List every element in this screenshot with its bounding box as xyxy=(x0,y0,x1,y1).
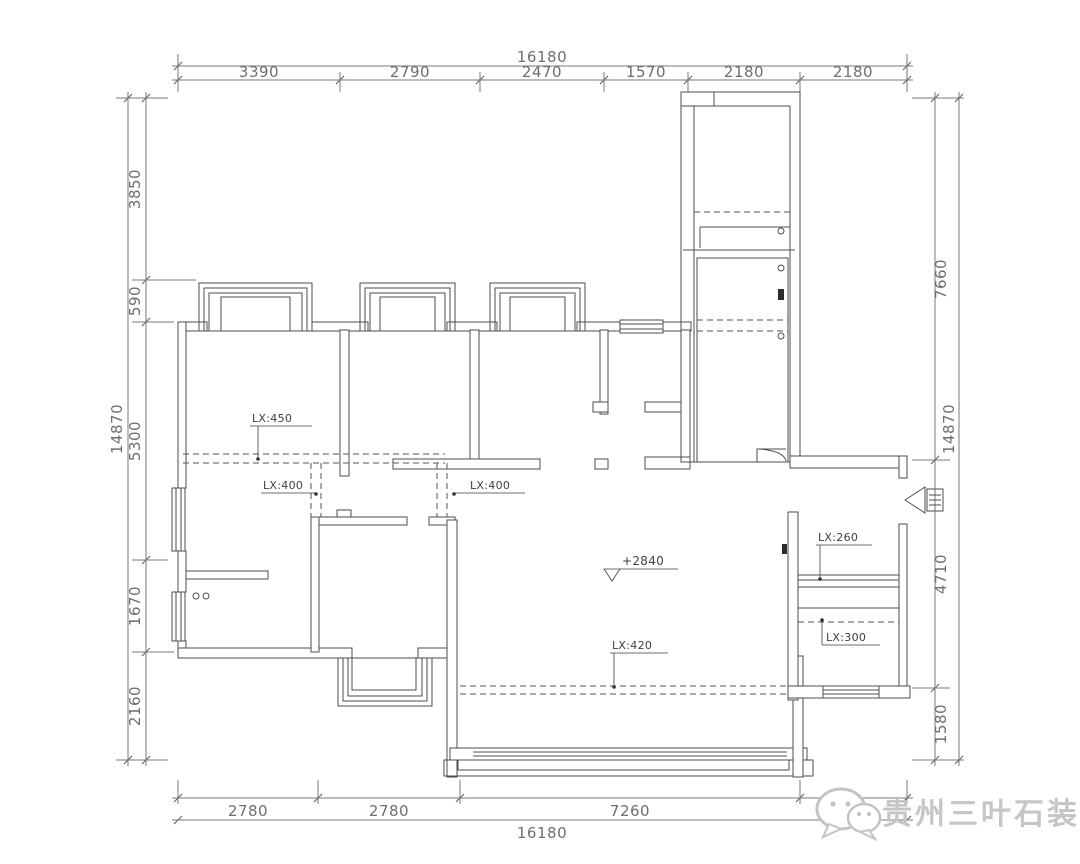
dim-right-overall: 14870 xyxy=(940,404,958,454)
svg-text:LX:260: LX:260 xyxy=(818,531,858,544)
dim-left-seg-5: 2160 xyxy=(126,686,144,726)
entry-arrow-icon xyxy=(905,487,943,513)
beam-dashed-vertical xyxy=(311,463,447,518)
window-balcony-bottom xyxy=(788,686,910,698)
wechat-logo-icon xyxy=(817,789,880,839)
wall-living-left xyxy=(447,520,457,777)
wall-entry-top xyxy=(790,456,907,468)
svg-text:LX:400: LX:400 xyxy=(263,479,303,492)
dim-top-seg-5: 2180 xyxy=(724,63,764,81)
bay-window-2 xyxy=(360,283,455,331)
dim-bottom-seg-2: 2780 xyxy=(369,802,409,820)
floor-plan-canvas: 16180 3390 2790 2470 1570 2180 2180 2780… xyxy=(0,0,1080,864)
svg-text:LX:400: LX:400 xyxy=(470,479,510,492)
dim-left-overall: 14870 xyxy=(108,404,126,454)
wall-balcony-left xyxy=(788,512,798,700)
annotation-level-living: +2840 xyxy=(604,554,678,581)
dim-left-seg-2: 590 xyxy=(126,286,144,316)
annotation-beam-bedroom: LX:450 xyxy=(250,412,312,461)
window-left-1 xyxy=(172,488,185,551)
wall-notch xyxy=(337,510,351,517)
dim-top-seg-6: 2180 xyxy=(833,63,873,81)
wall-hall-1 xyxy=(645,457,690,469)
dim-bottom-overall: 16180 xyxy=(517,824,567,842)
wall-partition-2 xyxy=(470,330,479,469)
dim-right-seg-2: 4710 xyxy=(932,554,950,594)
svg-text:LX:300: LX:300 xyxy=(826,631,866,644)
plan-walls xyxy=(172,92,943,777)
window-left-2 xyxy=(172,592,185,641)
dim-right-seg-3: 1580 xyxy=(932,704,950,744)
dim-bottom-seg-1: 2780 xyxy=(228,802,268,820)
annotation-beam-living: LX:420 xyxy=(610,639,668,689)
fixture-circle-2 xyxy=(203,593,209,599)
floor-plan-drawing: 16180 3390 2790 2470 1570 2180 2180 2780… xyxy=(0,0,1080,864)
dim-left-seg-4: 1670 xyxy=(126,586,144,626)
bay-window-bottom xyxy=(338,658,432,706)
wall-left-2 xyxy=(178,551,186,592)
svg-text:LX:450: LX:450 xyxy=(252,412,292,425)
wall-right-1 xyxy=(899,456,907,478)
wall-top-4 xyxy=(577,322,620,331)
beam-dashed-living xyxy=(460,686,790,694)
wall-jamb-1 xyxy=(595,459,608,469)
wall-room2-top xyxy=(319,517,407,525)
dim-top-seg-2: 2790 xyxy=(390,63,430,81)
dimension-column-right: 7660 4710 1580 14870 xyxy=(912,92,964,766)
annotation-beam-hall-left: LX:400 xyxy=(261,479,318,496)
bay-window-3 xyxy=(490,283,585,331)
wall-right-2 xyxy=(899,524,907,688)
dim-right-seg-1: 7660 xyxy=(932,259,950,299)
wall-lowerleft-vert xyxy=(311,517,319,652)
dim-left-seg-1: 3850 xyxy=(126,169,144,209)
dimension-row-bottom: 2780 2780 7260 16180 xyxy=(172,780,913,842)
watermark-text: 贵州三叶石装饰 xyxy=(882,797,1080,832)
dimension-row-top: 16180 3390 2790 2470 1570 2180 2180 xyxy=(172,48,913,92)
wall-leftroom-divider xyxy=(186,571,268,579)
wall-partition-3 xyxy=(600,330,608,414)
watermark: 贵州三叶石装饰 xyxy=(817,789,1080,839)
door-stop xyxy=(782,544,787,554)
svg-text:LX:420: LX:420 xyxy=(612,639,652,652)
svg-text:+2840: +2840 xyxy=(622,554,664,568)
wall-foot-1 xyxy=(593,402,608,412)
dim-top-seg-4: 1570 xyxy=(626,63,666,81)
wall-bottom-left-1 xyxy=(178,648,352,658)
window-bathroom xyxy=(620,320,663,333)
wall-bath-right xyxy=(681,330,690,469)
annotation-beam-hall-mid: LX:400 xyxy=(452,479,525,496)
balcony-steps xyxy=(798,575,899,608)
dim-top-seg-3: 2470 xyxy=(522,63,562,81)
wall-bedroom-bottom xyxy=(393,459,540,469)
dim-top-seg-1: 3390 xyxy=(239,63,279,81)
dim-bottom-seg-3: 7260 xyxy=(610,802,650,820)
fixture-circle-1 xyxy=(193,593,199,599)
bay-window-1 xyxy=(199,283,312,331)
dim-left-seg-3: 5300 xyxy=(126,421,144,461)
annotation-beam-balcony-upper: LX:260 xyxy=(816,531,872,581)
window-living-bottom xyxy=(444,748,813,776)
shaft xyxy=(681,92,800,462)
